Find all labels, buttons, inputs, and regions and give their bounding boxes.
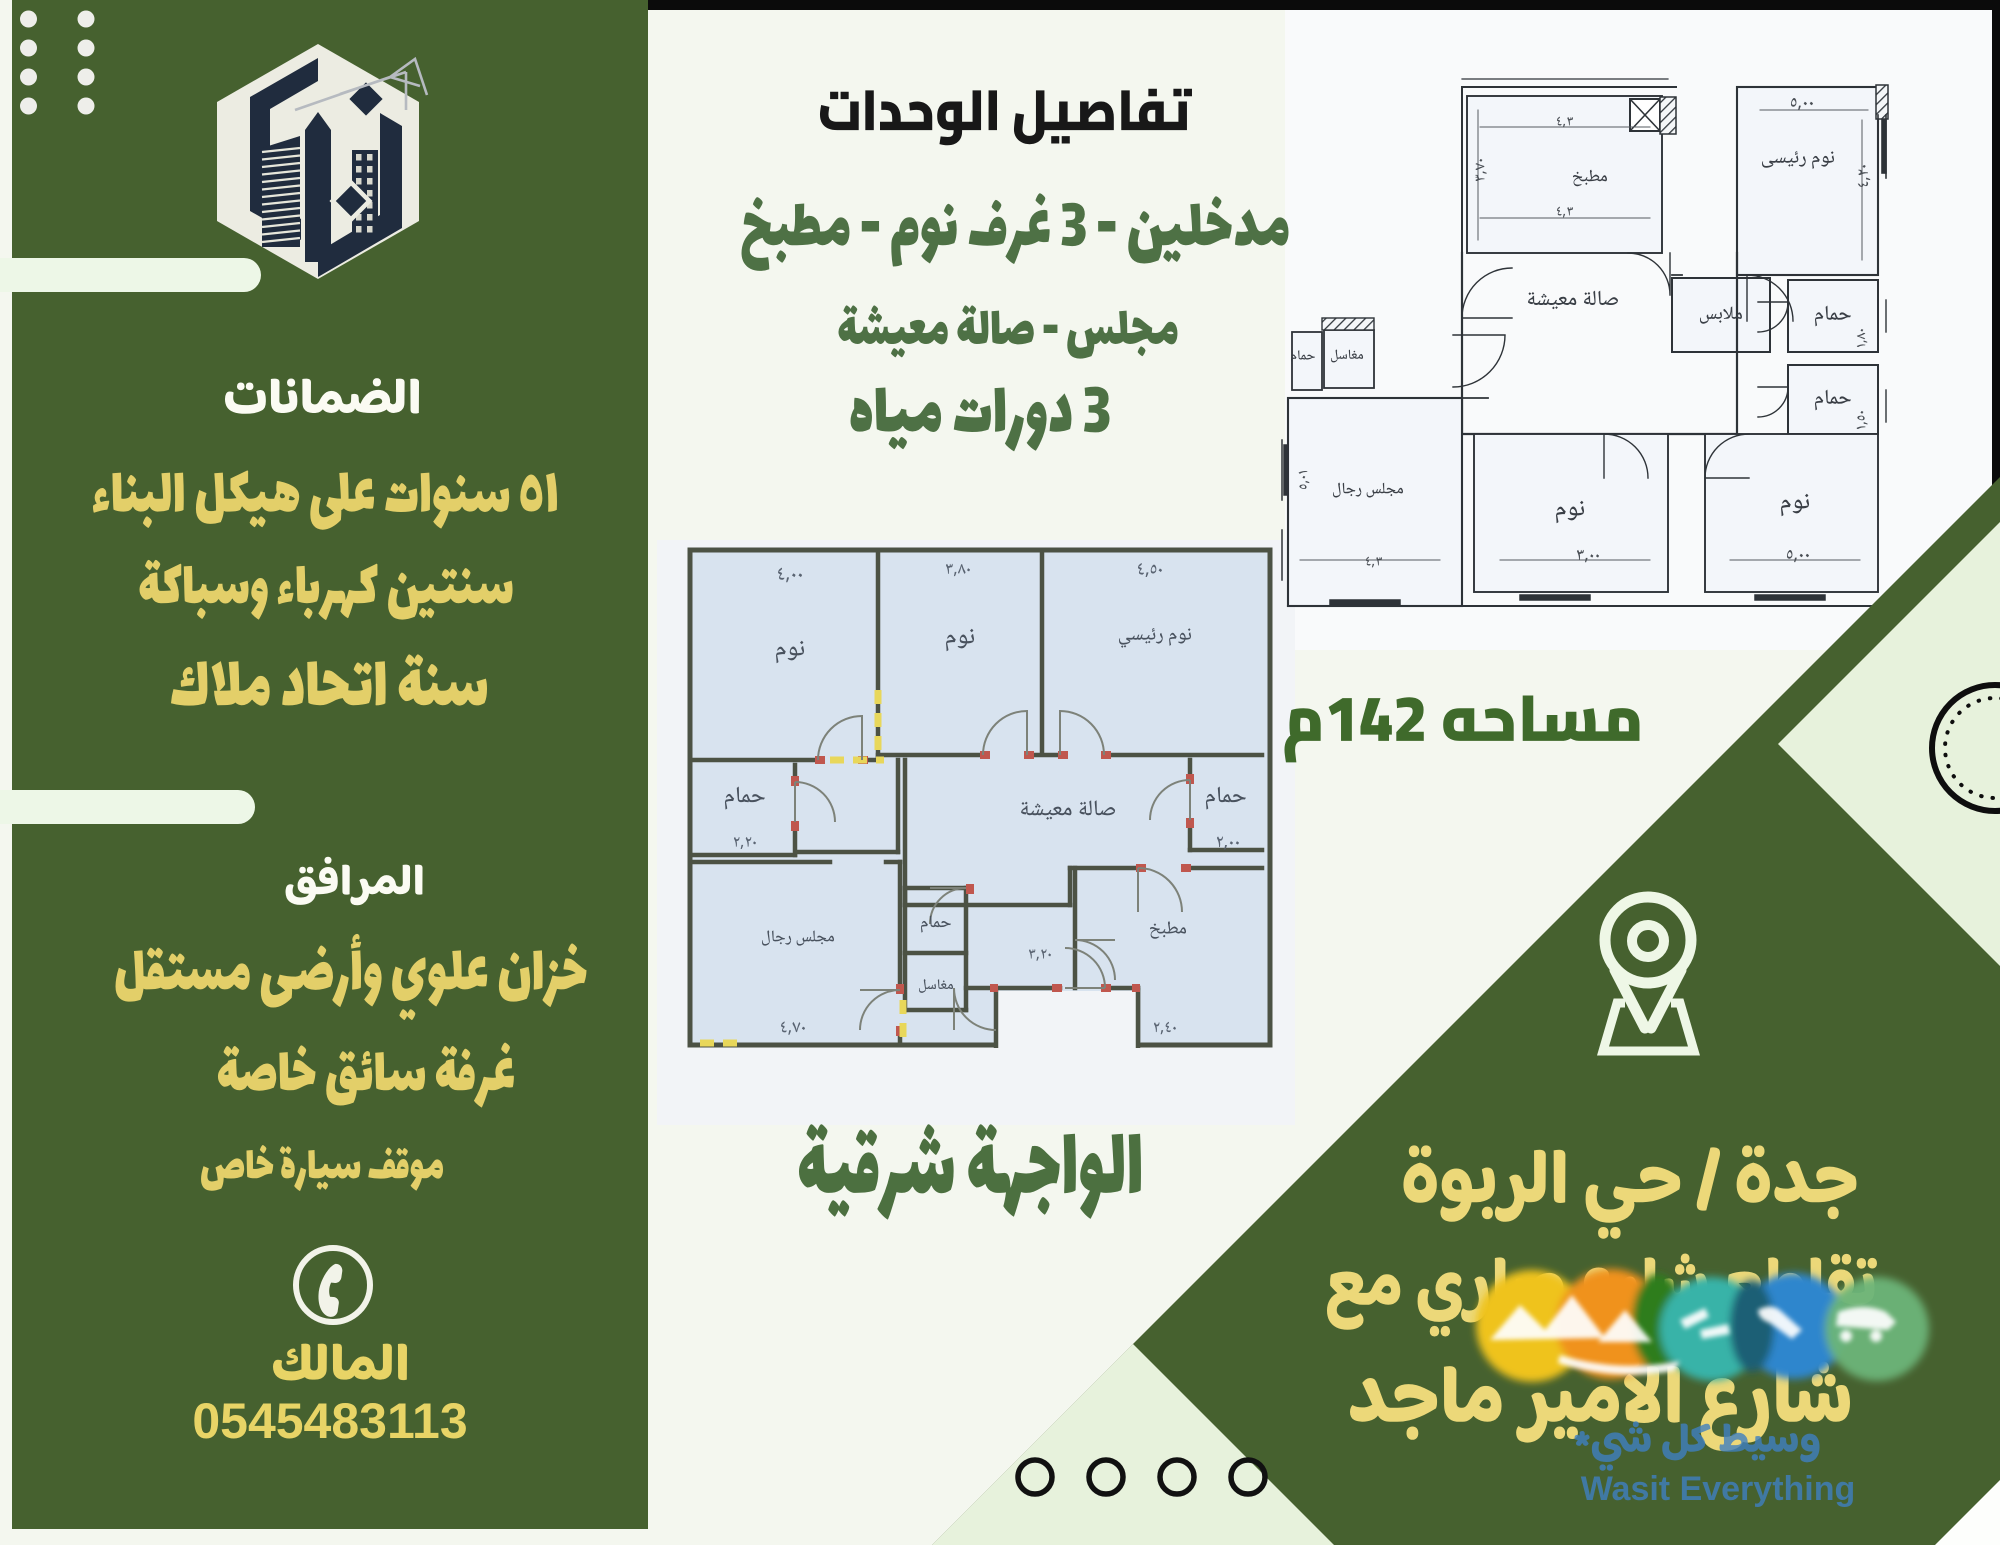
svg-text:Wasit Everything: Wasit Everything [1581,1470,1856,1508]
svg-text:0545483113: 0545483113 [192,1393,467,1449]
